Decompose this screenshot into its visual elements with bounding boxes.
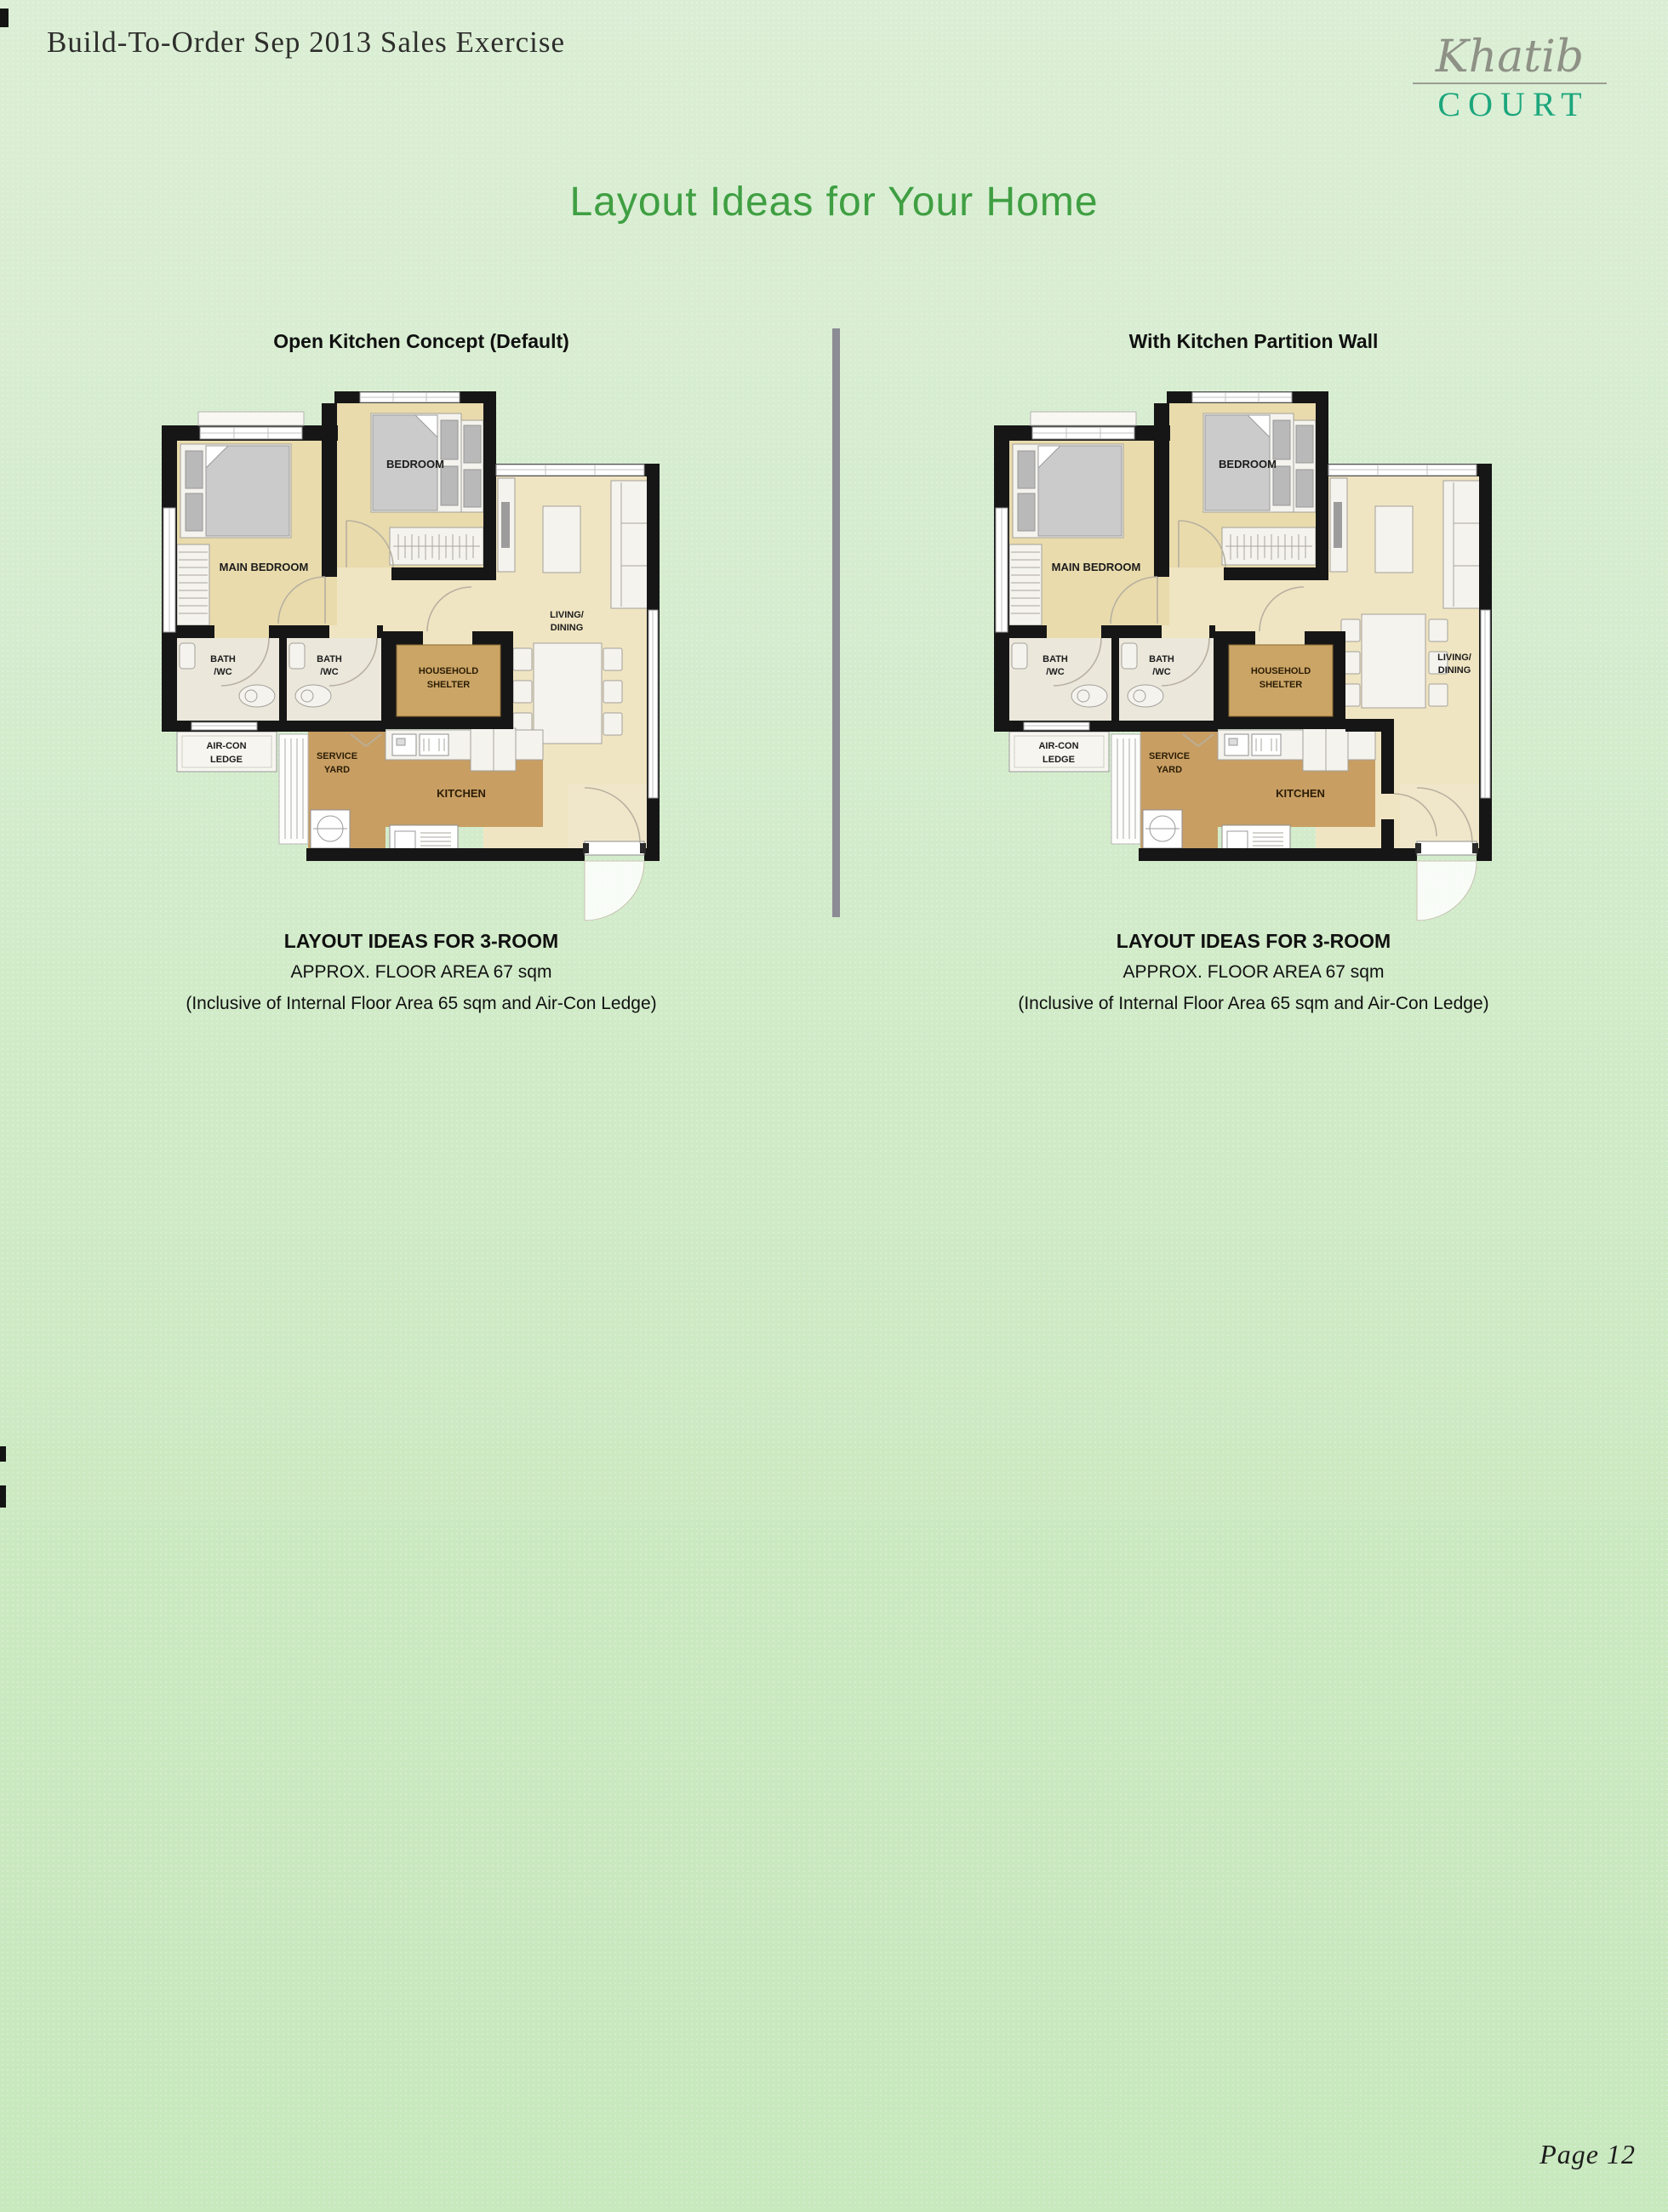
caption-note: (Inclusive of Internal Floor Area 65 sqm… bbox=[111, 992, 732, 1016]
bedroom-wardrobe bbox=[1294, 420, 1316, 512]
scan-artifact-mark bbox=[0, 9, 9, 27]
plan-caption-open: LAYOUT IDEAS FOR 3-ROOM APPROX. FLOOR AR… bbox=[111, 929, 732, 1016]
floorplan-open-kitchen: MAIN BEDROOM BEDROOM LIVING/ DINING BATH… bbox=[162, 391, 681, 944]
scan-artifact-mark bbox=[0, 1485, 6, 1508]
page-number: Page 12 bbox=[1539, 2139, 1636, 2170]
plan-heading-partition: With Kitchen Partition Wall bbox=[994, 330, 1513, 353]
laundry-rack bbox=[1111, 734, 1140, 844]
main-wardrobe bbox=[1009, 544, 1042, 625]
label-service-2: YARD bbox=[1157, 765, 1182, 775]
coffee-table bbox=[1375, 506, 1413, 573]
tv-console bbox=[1330, 478, 1347, 572]
coffee-table bbox=[543, 506, 580, 573]
label-main-bedroom: MAIN BEDROOM bbox=[1052, 561, 1141, 573]
label-service-1: SERVICE bbox=[1149, 751, 1190, 761]
caption-area: APPROX. FLOOR AREA 67 sqm bbox=[943, 961, 1564, 984]
label-aircon-2: LEDGE bbox=[1042, 755, 1075, 765]
plan-caption-partition: LAYOUT IDEAS FOR 3-ROOM APPROX. FLOOR AR… bbox=[943, 929, 1564, 1016]
caption-note: (Inclusive of Internal Floor Area 65 sqm… bbox=[943, 992, 1564, 1016]
bedroom-wardrobe bbox=[461, 420, 483, 512]
label-bath2-1: BATH bbox=[1149, 654, 1174, 664]
label-household-1: HOUSEHOLD bbox=[1251, 666, 1311, 676]
label-household-2: SHELTER bbox=[427, 680, 471, 690]
label-living-2: DINING bbox=[551, 623, 584, 633]
label-bath2-2: /WC bbox=[1152, 667, 1170, 677]
label-service-1: SERVICE bbox=[317, 751, 357, 761]
label-bath2-1: BATH bbox=[317, 654, 342, 664]
page-title: Layout Ideas for Your Home bbox=[0, 179, 1668, 225]
dining-set bbox=[513, 643, 622, 744]
label-kitchen: KITCHEN bbox=[1276, 787, 1325, 800]
vertical-divider bbox=[832, 328, 840, 917]
logo-block-text: COURT bbox=[1413, 87, 1607, 123]
aircon-ledge bbox=[1009, 732, 1109, 772]
label-bath1-1: BATH bbox=[1042, 654, 1068, 664]
bedroom-closet bbox=[390, 527, 483, 565]
aircon-ledge bbox=[177, 732, 277, 772]
tv-console bbox=[498, 478, 515, 572]
dining-set bbox=[1341, 614, 1448, 708]
label-aircon-2: LEDGE bbox=[210, 755, 243, 765]
caption-area: APPROX. FLOOR AREA 67 sqm bbox=[111, 961, 732, 984]
header-title: Build-To-Order Sep 2013 Sales Exercise bbox=[47, 26, 565, 60]
main-wardrobe bbox=[177, 544, 209, 625]
label-bath1-2: /WC bbox=[214, 667, 231, 677]
floorplan-kitchen-partition: MAIN BEDROOM BEDROOM LIVING/ DINING BATH… bbox=[994, 391, 1513, 944]
logo-script-text: Khatib bbox=[1413, 34, 1607, 81]
label-living-2: DINING bbox=[1438, 665, 1471, 676]
scan-artifact-mark bbox=[0, 1446, 6, 1462]
main-bed bbox=[1013, 444, 1123, 538]
brochure-page: Build-To-Order Sep 2013 Sales Exercise K… bbox=[0, 0, 1668, 2212]
bedroom-closet bbox=[1222, 527, 1316, 565]
caption-title: LAYOUT IDEAS FOR 3-ROOM bbox=[943, 929, 1564, 953]
label-service-2: YARD bbox=[324, 765, 350, 775]
label-bedroom: BEDROOM bbox=[386, 458, 444, 470]
label-bath1-2: /WC bbox=[1046, 667, 1064, 677]
caption-title: LAYOUT IDEAS FOR 3-ROOM bbox=[111, 929, 732, 953]
label-household-2: SHELTER bbox=[1260, 680, 1303, 690]
washing-machine bbox=[1143, 810, 1182, 848]
main-bed bbox=[180, 444, 291, 538]
washing-machine bbox=[311, 810, 350, 848]
khatib-court-logo: Khatib COURT bbox=[1413, 34, 1607, 123]
label-bedroom: BEDROOM bbox=[1219, 458, 1277, 470]
label-living-1: LIVING/ bbox=[1437, 653, 1471, 663]
label-household-1: HOUSEHOLD bbox=[419, 666, 478, 676]
label-aircon-1: AIR-CON bbox=[1038, 741, 1078, 751]
label-kitchen: KITCHEN bbox=[437, 787, 486, 800]
laundry-rack bbox=[279, 734, 308, 844]
label-living-1: LIVING/ bbox=[550, 610, 584, 620]
label-main-bedroom: MAIN BEDROOM bbox=[220, 561, 309, 573]
label-bath1-1: BATH bbox=[210, 654, 236, 664]
label-aircon-1: AIR-CON bbox=[206, 741, 246, 751]
label-bath2-2: /WC bbox=[320, 667, 338, 677]
plan-heading-open: Open Kitchen Concept (Default) bbox=[162, 330, 681, 353]
